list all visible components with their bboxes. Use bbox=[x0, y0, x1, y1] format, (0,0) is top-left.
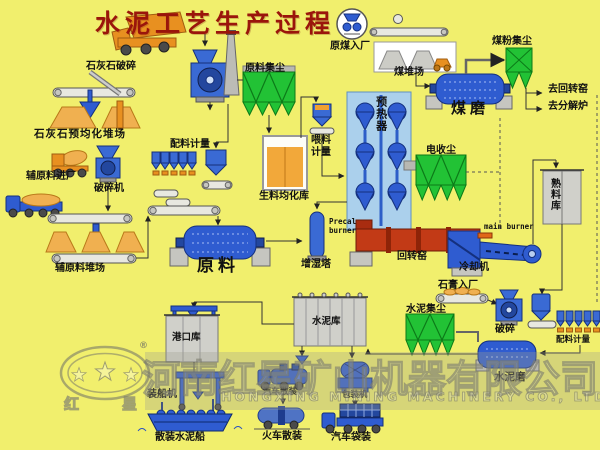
label-raw-dust-collector: 原料集尘 bbox=[245, 63, 285, 75]
esp-icon bbox=[404, 155, 466, 200]
bulk-cement-ship-icon bbox=[138, 399, 242, 431]
label-humidifier: 增湿塔 bbox=[301, 259, 331, 271]
auxiliary-piles-icon bbox=[46, 224, 144, 252]
label-cement-silo: 水泥库 bbox=[312, 317, 341, 328]
label-limestone-crushing: 石灰石破碎 bbox=[86, 61, 136, 73]
label-feed-metering: 喂料计量 bbox=[311, 135, 333, 158]
label-aux-entry: 辅原料进厂 bbox=[26, 171, 76, 183]
label-cement-mill: 水泥磨 bbox=[494, 371, 526, 383]
limestone-conveyor-icon bbox=[53, 72, 135, 97]
label-to-rotary-kiln: 去回转窑 bbox=[548, 84, 588, 96]
clinker-hopper-icon bbox=[528, 294, 556, 328]
clinker-silo-icon bbox=[540, 170, 584, 224]
auxiliary-crusher-icon bbox=[96, 146, 120, 182]
raw-feed-conveyor-icon bbox=[148, 206, 220, 215]
cement-process-flowchart: 水泥工艺生产过程 石灰石破碎 石灰石预均化堆场 辅原料进厂 破碎机 辅原料堆场 … bbox=[0, 0, 600, 450]
label-cement-batching: 配料计量 bbox=[556, 336, 590, 346]
coal-conveyor-icon bbox=[370, 15, 448, 37]
label-rotary-kiln: 回转窑 bbox=[397, 251, 427, 263]
humidifier-tower-icon bbox=[308, 212, 326, 260]
bag-truck-icon bbox=[322, 404, 383, 433]
cement-batching-hoppers-icon bbox=[557, 311, 600, 332]
main-burner-icon bbox=[478, 233, 492, 238]
label-precal-burner: Precal burner bbox=[329, 217, 367, 235]
label-preheater: 预热器 bbox=[374, 96, 387, 132]
label-esp: 电收尘 bbox=[426, 145, 456, 157]
train-tanker-icon bbox=[254, 406, 310, 429]
label-train-bulk: 火车散装 bbox=[262, 431, 302, 443]
label-coal-dust-collector: 煤粉集尘 bbox=[492, 36, 532, 48]
gypsum-crusher-icon bbox=[496, 290, 522, 325]
label-raw-mill: 原料 bbox=[197, 257, 239, 277]
feed-metering-icon bbox=[310, 104, 334, 134]
label-cooler: 冷却机 bbox=[459, 262, 489, 274]
label-truck-bulk: 汽车散装 bbox=[263, 388, 297, 398]
homogenizing-silo-icon bbox=[263, 136, 307, 190]
label-aux-yard: 辅原料堆场 bbox=[55, 263, 105, 275]
label-gypsum-entry: 石膏入厂 bbox=[438, 280, 478, 292]
label-aux-crusher: 破碎机 bbox=[94, 183, 124, 195]
label-coal-entry: 原煤入厂 bbox=[330, 41, 370, 53]
label-truck-bag: 汽车袋装 bbox=[331, 432, 371, 444]
label-main-burner: main burner bbox=[484, 222, 554, 231]
limestone-crusher-icon bbox=[191, 50, 229, 102]
label-clinker-silo: 熟料库 bbox=[548, 178, 560, 211]
label-cement-crushing: 破碎 bbox=[495, 324, 515, 336]
ship-loader-icon bbox=[176, 372, 224, 410]
auxiliary-conveyor-icon bbox=[48, 214, 132, 223]
coal-intake-icon bbox=[337, 9, 367, 39]
raw-batching-hoppers-icon bbox=[152, 152, 196, 175]
label-port-silo: 港口库 bbox=[172, 333, 201, 344]
label-coal-mill: 煤磨 bbox=[451, 100, 489, 117]
label-raw-batching: 配料计量 bbox=[170, 139, 210, 151]
label-bulk-ship: 散装水泥船 bbox=[155, 432, 205, 444]
label-cement-dust-collector: 水泥集尘 bbox=[406, 304, 446, 316]
label-limestone-preblending-yard: 石灰石预均化堆场 bbox=[34, 128, 126, 140]
cement-mill-icon bbox=[476, 341, 539, 371]
label-coal-yard: 煤堆场 bbox=[394, 67, 424, 79]
truck-bulk-loader-icon bbox=[258, 356, 308, 390]
label-ship-loader: 装船机 bbox=[147, 389, 177, 401]
raw-batching-big-hopper-icon bbox=[202, 150, 232, 189]
label-to-calciner: 去分解炉 bbox=[548, 101, 588, 113]
coal-dust-collector-icon bbox=[506, 48, 532, 88]
label-packer: 包装机 bbox=[342, 391, 368, 401]
page-title: 水泥工艺生产过程 bbox=[95, 4, 335, 40]
packing-machine-icon bbox=[338, 362, 372, 392]
cement-dust-collector-icon bbox=[406, 314, 454, 355]
label-homogenizing-silo: 生料均化库 bbox=[259, 191, 309, 203]
